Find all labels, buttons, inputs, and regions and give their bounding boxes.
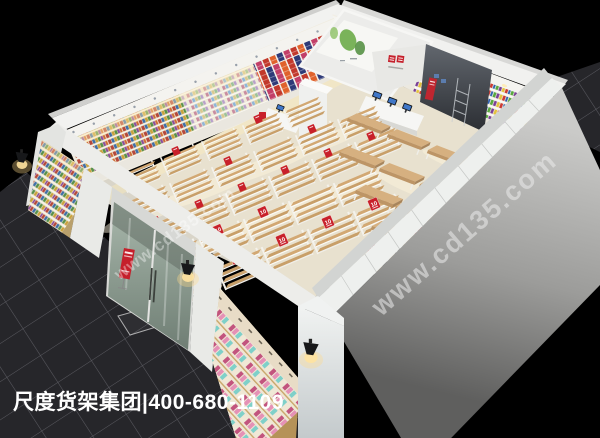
caption-company-phone: 尺度货架集团|400-680-1109 [13,390,284,414]
corner-column [298,306,344,438]
store-render-scene: 10 10 10 10 10 10 10 [0,0,600,438]
render-canvas: 10 10 10 10 10 10 10 [0,0,600,438]
